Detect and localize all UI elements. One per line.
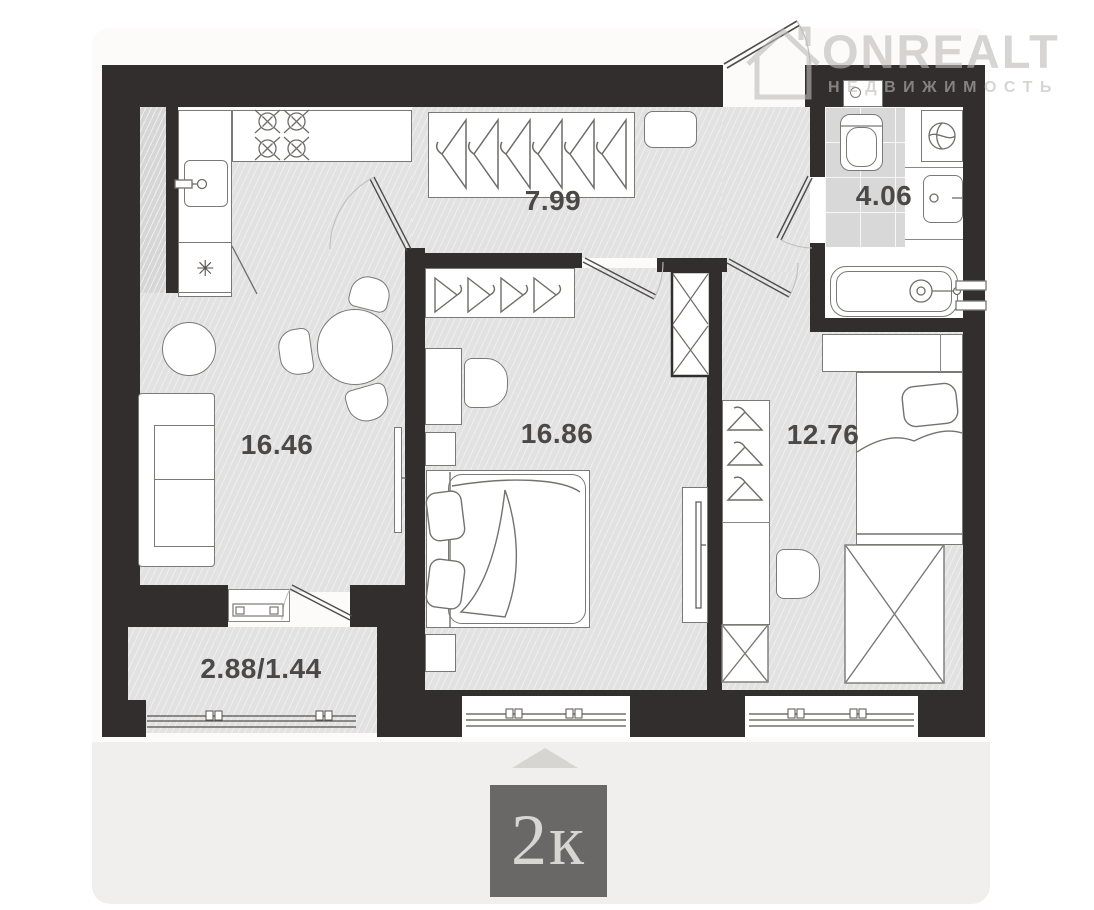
sofa-cushion [154, 479, 215, 547]
bathroom-door-opening [810, 177, 825, 243]
watermark-subtitle: НЕДВИЖИМОСТЬ [828, 79, 1059, 97]
shoe-bench [644, 111, 697, 148]
room-label-bathroom: 4.06 [856, 180, 913, 212]
room-label-bedroom: 16.86 [521, 418, 594, 450]
room-count-label: 2к [511, 800, 586, 880]
tv-icon [394, 427, 402, 533]
vent-shaft [140, 107, 166, 293]
pointer-triangle-icon [512, 748, 578, 768]
wall [405, 253, 582, 268]
room-label-hallway: 7.99 [525, 185, 582, 217]
toilet-bowl [846, 127, 877, 167]
desk-chair [464, 358, 508, 408]
fridge-snowflake-icon: ✳ [196, 256, 214, 282]
washing-machine-icon [921, 110, 963, 162]
room-count-badge: 2к [490, 785, 607, 897]
bedroom-2-wardrobe [722, 400, 770, 625]
mattress [448, 474, 586, 624]
wall [810, 107, 825, 177]
kitchen-counter [232, 110, 412, 162]
wall [166, 107, 178, 293]
closet [822, 334, 963, 372]
bedroom-2-window [745, 696, 918, 737]
bathtub-inner [836, 271, 952, 312]
vanity-divider [905, 167, 963, 168]
armchair [776, 549, 820, 599]
wall [102, 65, 723, 107]
single-bed [856, 372, 963, 545]
floor-plan-page: ✳ [0, 0, 1094, 910]
wall [350, 585, 412, 627]
wall [102, 65, 140, 627]
tv-stand [682, 487, 708, 623]
dining-table [317, 309, 393, 385]
wall [707, 272, 722, 690]
coffee-table [162, 322, 216, 376]
room-label-living: 16.46 [241, 429, 314, 461]
wall [657, 258, 727, 272]
washbasin-icon [923, 175, 963, 223]
sofa-cushion [154, 425, 215, 480]
nightstand [425, 432, 456, 466]
kitchen-sink-icon [184, 160, 228, 207]
balcony-door-opening [228, 589, 290, 622]
watermark-brand: ONREALT [822, 24, 1060, 79]
nightstand [425, 634, 456, 672]
closet-divider [940, 334, 941, 372]
wall [405, 248, 425, 690]
vanity-divider [905, 239, 963, 240]
room-label-balcony: 2.88/1.44 [200, 653, 321, 685]
wall [810, 318, 985, 332]
wall [963, 65, 985, 737]
desk [425, 348, 462, 425]
bedroom-window [462, 696, 630, 737]
wall [102, 700, 146, 737]
wardrobe-divider [722, 522, 770, 523]
room-label-bedroom-2: 12.76 [787, 419, 860, 451]
bedroom-wardrobe [425, 268, 575, 318]
